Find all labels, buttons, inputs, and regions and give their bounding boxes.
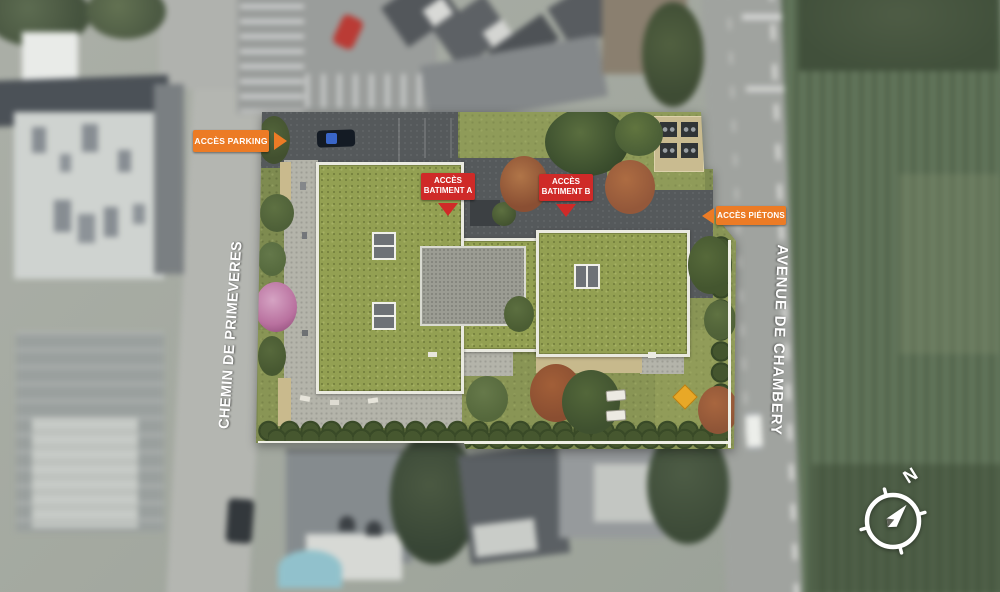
street-label-avenue-de-chambery: AVENUE DE CHAMBERY xyxy=(767,244,791,436)
access-building-a-label: ACCÈS BATIMENT A xyxy=(421,173,475,200)
access-building-b-line2: BATIMENT B xyxy=(539,187,593,197)
access-building-a-pointer-icon xyxy=(438,203,458,216)
access-pedestrian-arrow-icon xyxy=(702,208,714,224)
street-label-chemin-de-primeveres: CHEMIN DE PRIMEVERES xyxy=(216,240,245,429)
site-plan-map: ACCÈS PARKING ACCÈS BATIMENT A ACCÈS BAT… xyxy=(0,0,1000,592)
north-label: N xyxy=(900,464,922,488)
access-parking-arrow-icon xyxy=(274,132,287,150)
compass-needle xyxy=(883,501,912,532)
access-building-b-label: ACCÈS BATIMENT B xyxy=(539,174,593,201)
access-building-a-line2: BATIMENT A xyxy=(421,186,475,196)
access-pedestrian-label: ACCÈS PIÉTONS xyxy=(716,206,786,225)
access-building-b-pointer-icon xyxy=(556,204,576,217)
compass-rose: N xyxy=(853,464,934,562)
access-building-a-line1: ACCÈS xyxy=(421,176,475,186)
access-building-b-line1: ACCÈS xyxy=(539,177,593,187)
compass-icon: N xyxy=(852,460,936,564)
access-parking-label: ACCÈS PARKING xyxy=(193,130,269,152)
